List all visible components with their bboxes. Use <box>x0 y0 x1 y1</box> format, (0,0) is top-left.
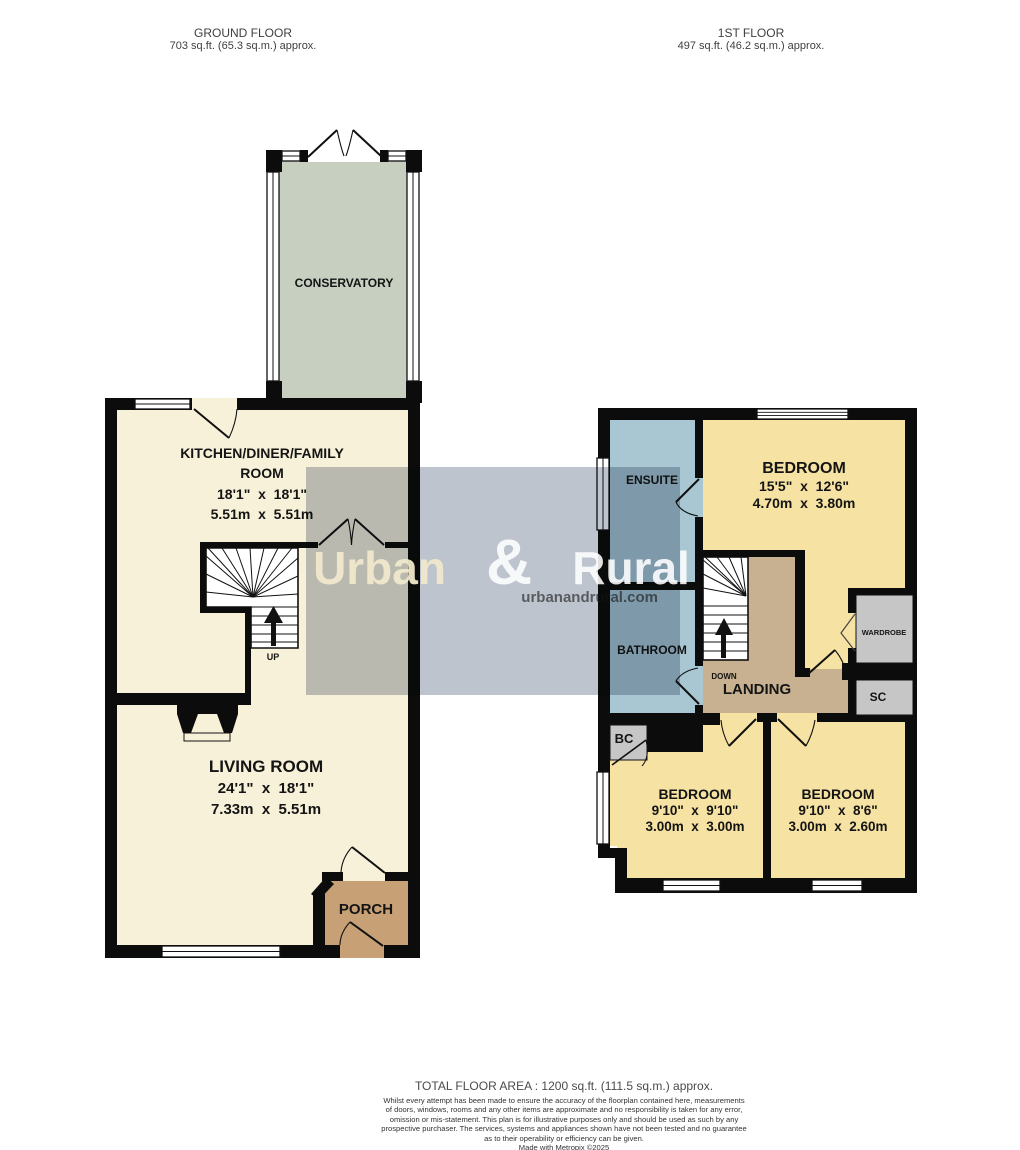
down-arrow-stem <box>721 633 726 658</box>
disclaimer-line: prospective purchaser. The services, sys… <box>334 1124 794 1133</box>
disclaimer-line: omission or mis-statement. This plan is … <box>334 1115 794 1124</box>
porch-inner-door-opening <box>343 872 385 881</box>
watermark-website: urbanandrural.com <box>521 589 658 606</box>
label-bedroom2: BEDROOM <box>658 786 731 802</box>
floorplan-page: GROUND FLOOR 703 sq.ft. (65.3 sq.m.) app… <box>0 0 1020 1150</box>
watermark: Urban & Rural urbanandrural.com <box>273 467 721 695</box>
disclaimer-line: of doors, windows, rooms and any other i… <box>334 1105 794 1114</box>
disclaimer-line: Whilst every attempt has been made to en… <box>334 1096 794 1105</box>
watermark-brand-second: Rural <box>572 542 690 594</box>
bedroom3-door-opening <box>777 713 817 722</box>
label-landing: LANDING <box>723 681 791 698</box>
fireplace-hearth <box>184 733 230 741</box>
kitchen-garden-door-opening <box>192 398 237 410</box>
label-conservatory: CONSERVATORY <box>295 276 394 290</box>
footer: TOTAL FLOOR AREA : 1200 sq.ft. (111.5 sq… <box>334 1079 794 1150</box>
label-bedroom2-dims-metric: 3.00m x 3.00m <box>645 819 744 834</box>
label-living-room: LIVING ROOM <box>209 757 323 776</box>
label-bc: BC <box>615 731 634 746</box>
ensuite-door-opening <box>695 478 703 517</box>
label-bedroom1-dims-imperial: 15'5" x 12'6" <box>759 478 849 494</box>
label-sc: SC <box>870 690 887 704</box>
label-kitchen-line2: ROOM <box>240 465 284 481</box>
bedroom1-door-opening <box>810 669 842 677</box>
label-living-dims-metric: 7.33m x 5.51m <box>211 801 321 818</box>
label-bedroom3-dims-imperial: 9'10" x 8'6" <box>798 803 877 818</box>
label-porch: PORCH <box>339 901 393 918</box>
label-wardrobe: WARDROBE <box>862 628 907 637</box>
credit-line: Made with Metropix ©2025 <box>334 1143 794 1150</box>
front-door-opening <box>340 945 384 958</box>
label-bedroom3-dims-metric: 3.00m x 2.60m <box>788 819 887 834</box>
total-floor-area: TOTAL FLOOR AREA : 1200 sq.ft. (111.5 sq… <box>334 1079 794 1093</box>
label-kitchen-dims-metric: 5.51m x 5.51m <box>211 506 314 522</box>
watermark-brand-first: Urban <box>313 542 446 594</box>
watermark-ampersand: & <box>486 526 532 598</box>
label-kitchen-line1: KITCHEN/DINER/FAMILY <box>180 445 344 461</box>
label-living-dims-imperial: 24'1" x 18'1" <box>218 780 314 797</box>
label-stairs-down: DOWN <box>711 672 737 681</box>
bathroom-door-opening <box>695 666 703 705</box>
label-bedroom1-dims-metric: 4.70m x 3.80m <box>753 495 856 511</box>
label-kitchen-dims-imperial: 18'1" x 18'1" <box>217 486 307 502</box>
floorplan-canvas: CONSERVATORY KITCHEN/DINER/FAMILY ROOM 1… <box>0 0 1020 1150</box>
disclaimer-line: as to their operability or efficiency ca… <box>334 1134 794 1143</box>
landing-area <box>795 677 852 713</box>
label-bedroom1: BEDROOM <box>762 460 846 477</box>
label-bedroom2-dims-imperial: 9'10" x 9'10" <box>652 803 739 818</box>
bedroom1-window <box>757 409 848 419</box>
label-stairs-up: UP <box>267 652 280 662</box>
up-arrow-stem <box>271 621 276 646</box>
label-bedroom3: BEDROOM <box>801 786 874 802</box>
